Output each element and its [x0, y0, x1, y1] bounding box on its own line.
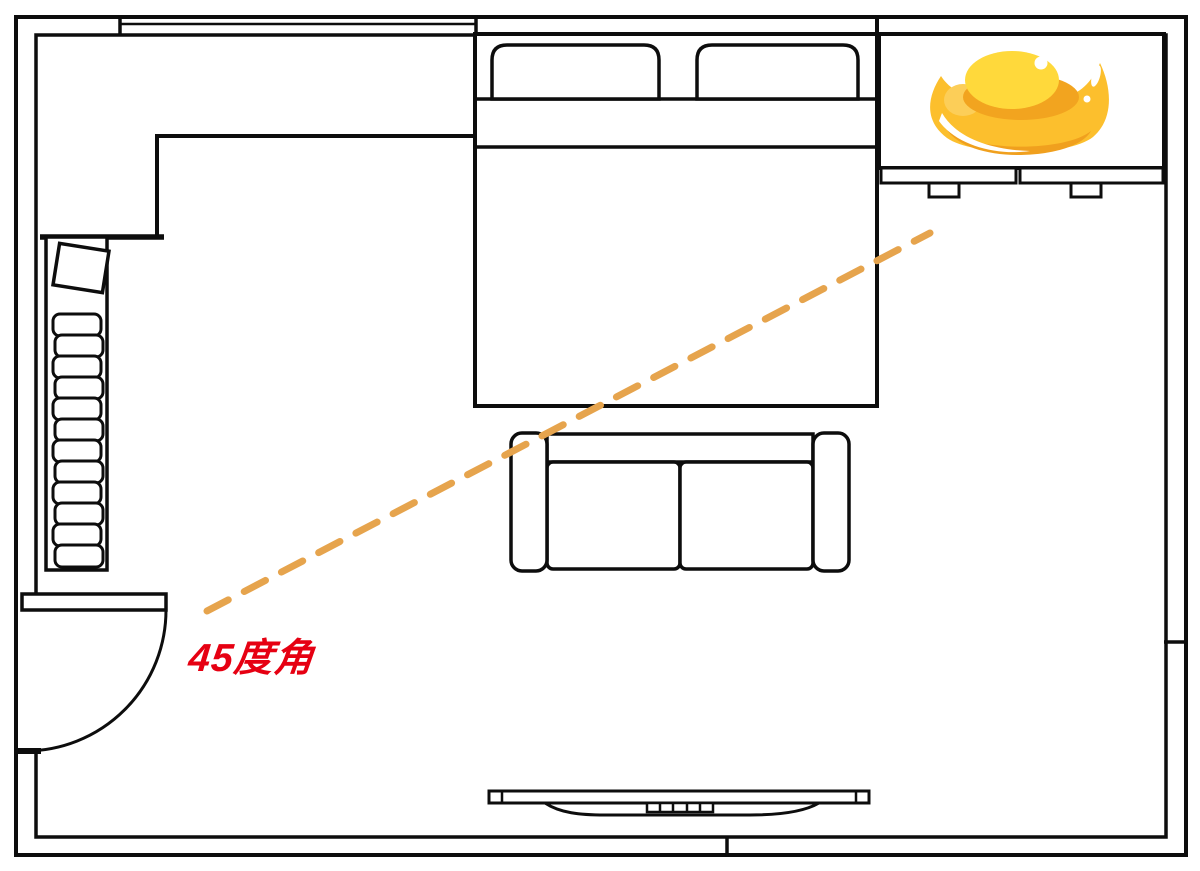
tv-cabinet	[489, 791, 869, 815]
sofa-cushion-right	[680, 462, 813, 569]
shelf-item	[53, 314, 101, 336]
shelf-item	[53, 440, 101, 462]
desk-edge-left	[881, 168, 1016, 183]
tv-mount	[647, 803, 713, 812]
pillow-right	[697, 45, 858, 99]
closet-niche	[40, 136, 475, 237]
entry-door	[14, 594, 166, 751]
pillow-left	[492, 45, 659, 99]
shelf-item	[55, 377, 103, 399]
shelf-stack	[53, 314, 103, 567]
shelf-item	[55, 419, 103, 441]
door-leaf	[22, 594, 166, 610]
sofa-armrest-left	[511, 433, 547, 571]
ingot-glint-dot	[1084, 96, 1091, 103]
storage-box	[53, 243, 109, 292]
tv-screen	[489, 791, 869, 803]
sofa-cushion-left	[547, 462, 680, 569]
sofa-armrest-right	[813, 433, 849, 571]
desk-edge-right	[1020, 168, 1163, 183]
shelf-item	[53, 482, 101, 504]
shelf-item	[55, 503, 103, 525]
shelf-item	[53, 356, 101, 378]
sofa	[511, 433, 849, 571]
double-bed	[475, 34, 877, 406]
shelf-item	[53, 398, 101, 420]
floor-plan-drawing	[0, 0, 1200, 871]
wardrobe-shelf	[46, 237, 109, 570]
shelf-item	[53, 524, 101, 546]
angle-label: 45度角	[186, 627, 317, 683]
shelf-item	[55, 335, 103, 357]
shelf-item	[55, 461, 103, 483]
door-swing-arc	[25, 610, 166, 751]
shelf-item	[55, 545, 103, 567]
desk-foot-left	[929, 183, 959, 197]
desk-foot-right	[1071, 183, 1101, 197]
floor-plan: 45度角	[0, 0, 1200, 871]
ingot-glint-dome	[1035, 57, 1048, 70]
sofa-backrest	[547, 434, 813, 462]
closet-outline	[157, 136, 475, 237]
